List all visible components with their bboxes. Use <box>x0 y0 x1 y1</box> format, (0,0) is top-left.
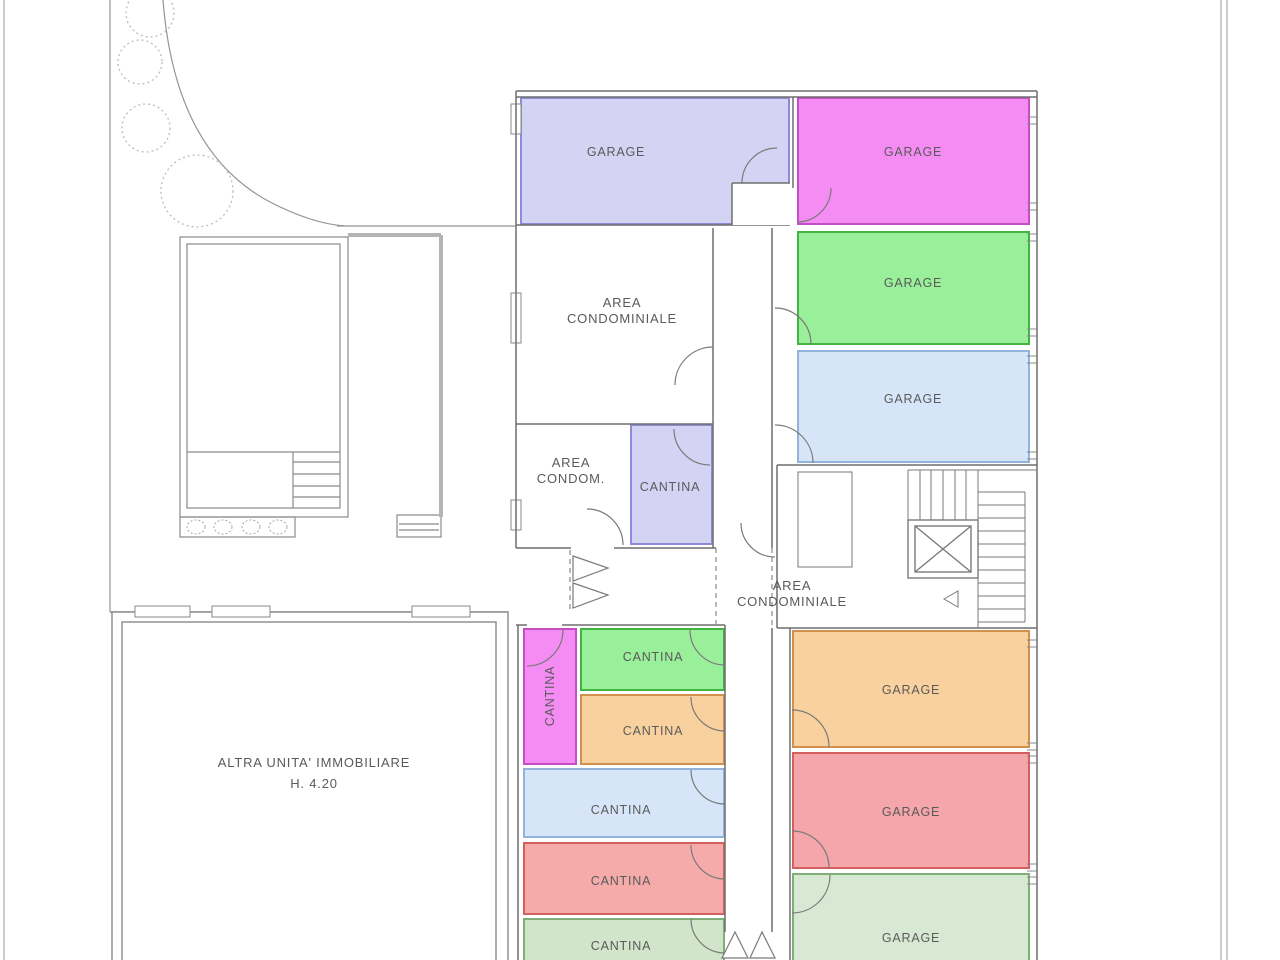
entrance-door-icon <box>722 932 775 958</box>
label-area-condom-small: AREA CONDOM. <box>537 455 605 487</box>
label-garage-e-green: GARAGE <box>884 276 942 290</box>
label-cantina-lavender: CANTINA <box>640 480 700 494</box>
label-cantina-magenta: CANTINA <box>543 666 557 726</box>
label-cantina-pale-green: CANTINA <box>591 939 651 953</box>
tree-icon <box>118 0 233 227</box>
label-garage-nw: GARAGE <box>587 145 645 159</box>
ramp-wall-thick <box>348 235 441 517</box>
room-garage-s-green <box>792 873 1030 960</box>
label-area-condominiale-upper: AREA CONDOMINIALE <box>567 295 677 327</box>
room-garage-nw <box>520 97 790 225</box>
label-area-condominiale-open: AREA CONDOMINIALE <box>737 578 847 610</box>
planter-dots <box>187 520 287 534</box>
room-garage-ne <box>797 97 1030 225</box>
site-boundary <box>110 0 516 612</box>
label-cantina-orange: CANTINA <box>623 724 683 738</box>
double-door-icon <box>573 556 608 608</box>
label-cantina-green: CANTINA <box>623 650 683 664</box>
room-garage-e-blue <box>797 350 1030 463</box>
window-icon <box>135 104 521 617</box>
label-cantina-blue: CANTINA <box>591 803 651 817</box>
label-garage-s-green: GARAGE <box>882 931 940 945</box>
label-garage-s-red: GARAGE <box>882 805 940 819</box>
floor-plan: GARAGE GARAGE GARAGE GARAGE CANTINA CANT… <box>0 0 1280 960</box>
stair-arrow-icon <box>944 591 958 607</box>
elevator-icon <box>908 520 978 578</box>
ramp-structure <box>180 237 441 537</box>
label-garage-e-blue: GARAGE <box>884 392 942 406</box>
label-garage-s-orange: GARAGE <box>882 683 940 697</box>
label-cantina-red: CANTINA <box>591 874 651 888</box>
label-altra-unita: ALTRA UNITA' IMMOBILIARE H. 4.20 <box>218 752 410 794</box>
label-garage-ne: GARAGE <box>884 145 942 159</box>
